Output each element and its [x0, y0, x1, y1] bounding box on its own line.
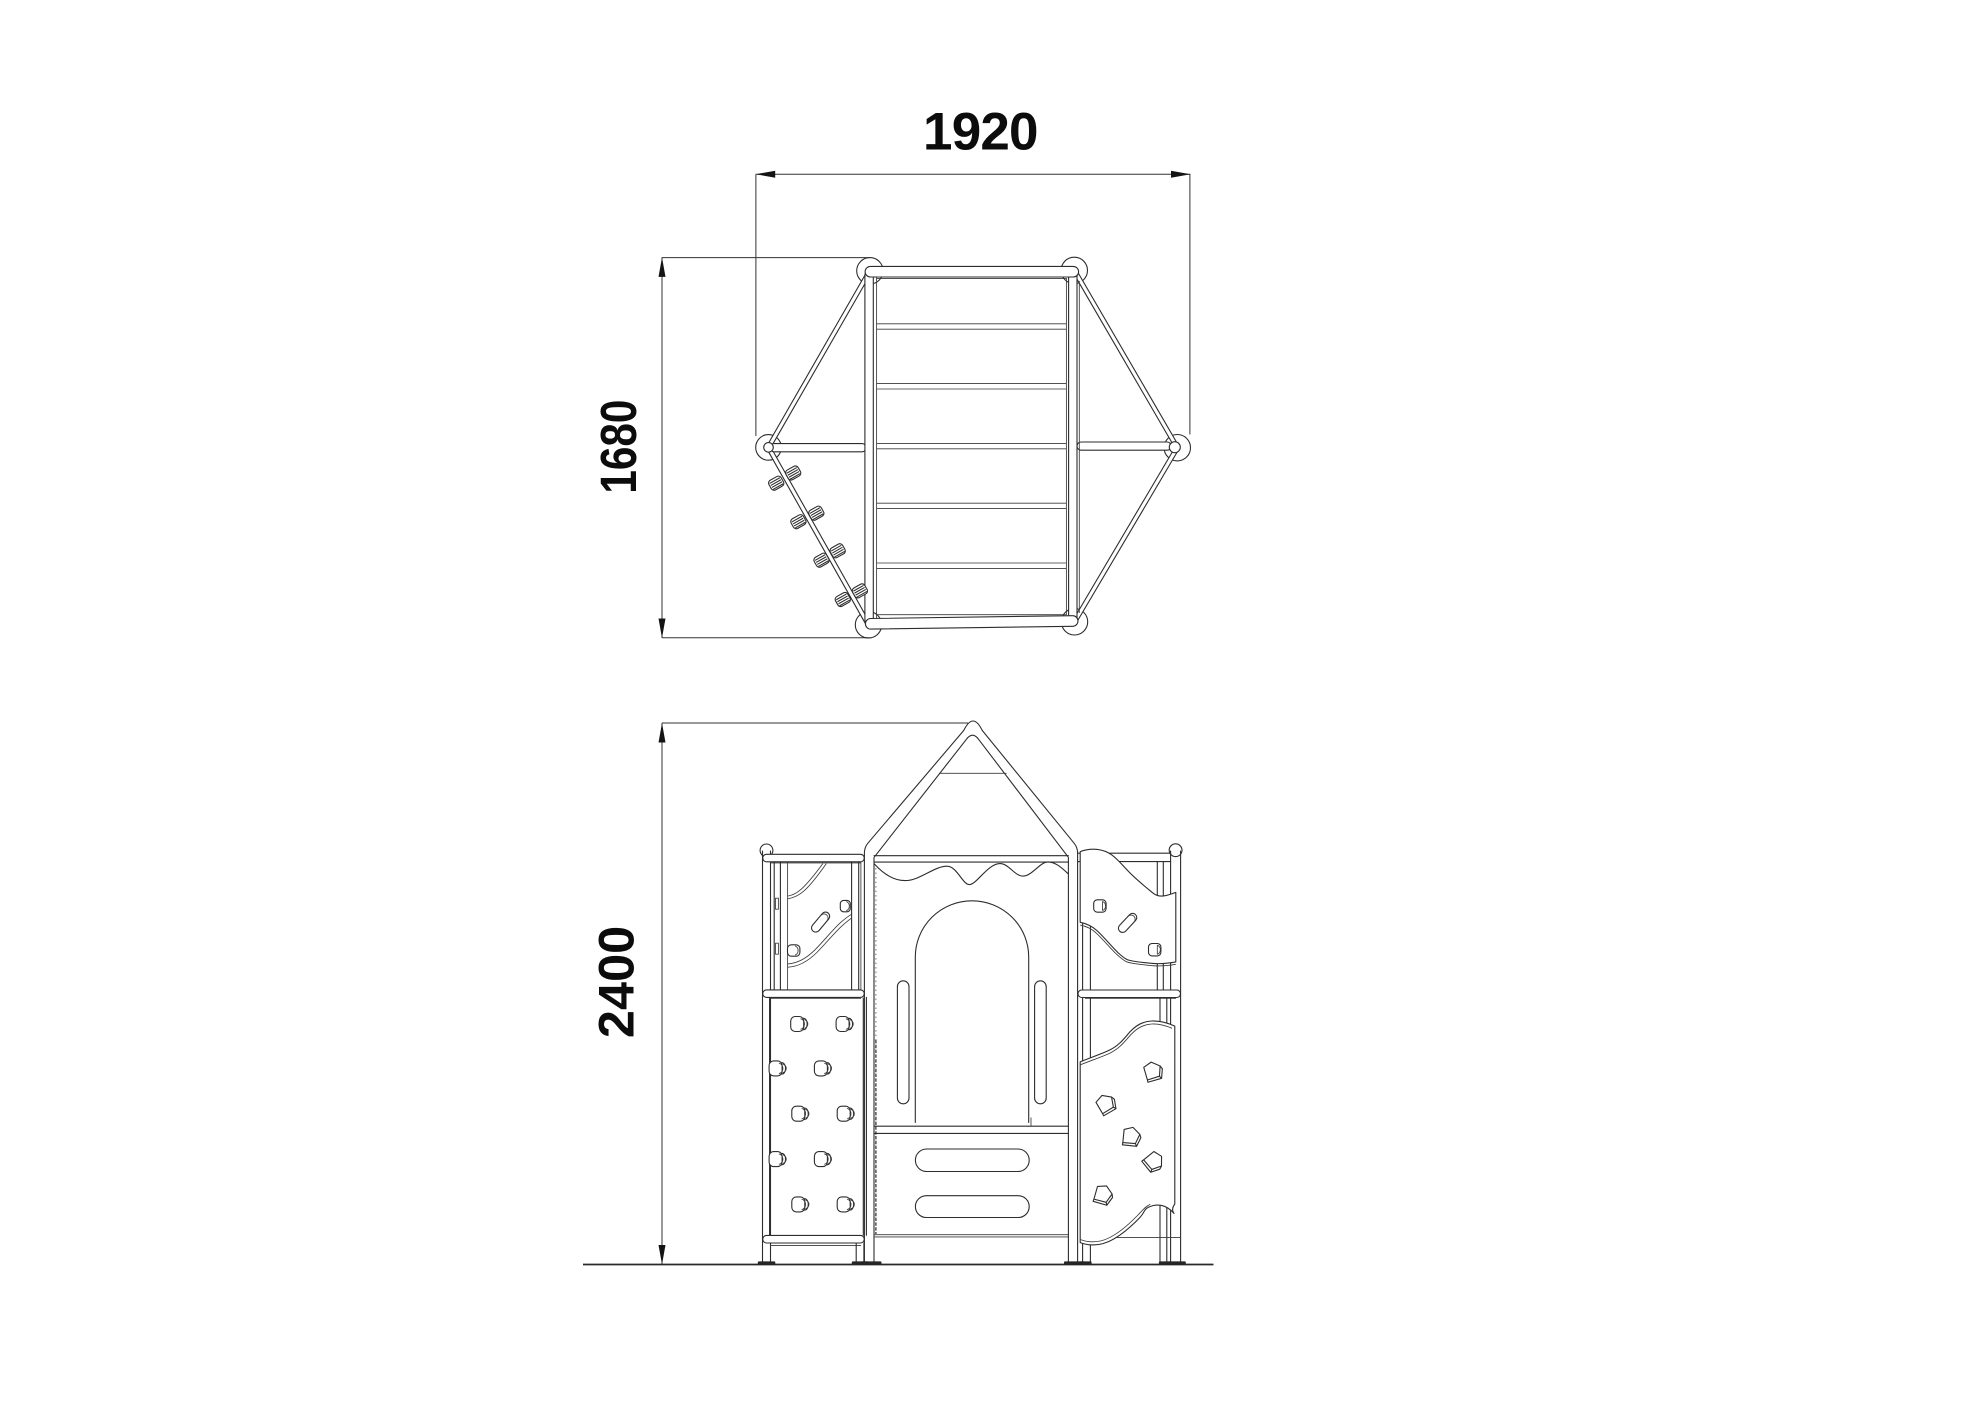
svg-text:1680: 1680 [590, 400, 647, 494]
svg-text:2400: 2400 [588, 926, 645, 1038]
svg-text:1920: 1920 [923, 103, 1038, 162]
